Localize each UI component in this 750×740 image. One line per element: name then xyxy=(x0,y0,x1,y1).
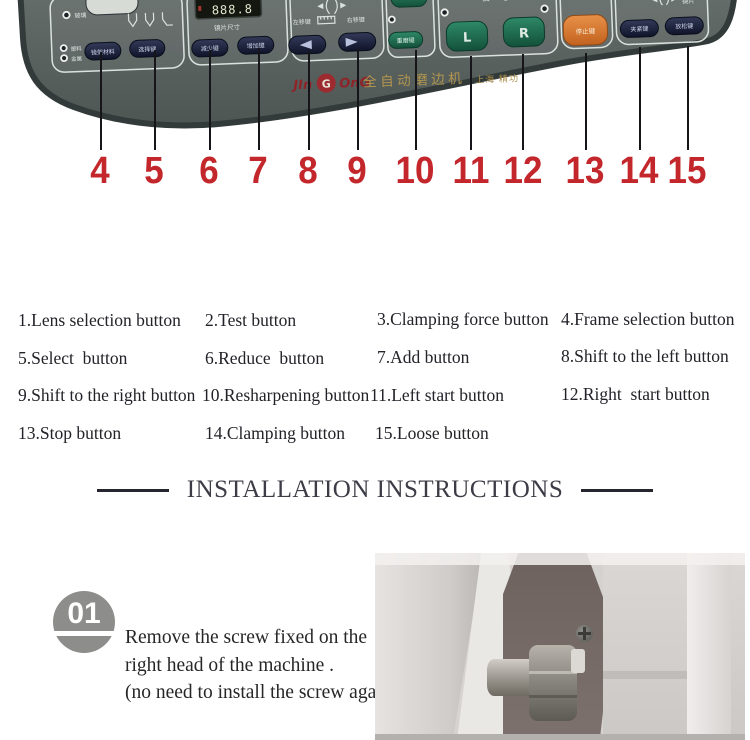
control-panel-photo: 玻璃 塑料 金属 镜架材料 选择键 888.8 镜片尺寸 减少键 xyxy=(0,0,750,160)
callout-number-7: 7 xyxy=(248,152,267,190)
callout-line-5 xyxy=(154,50,156,150)
callout-number-4: 4 xyxy=(90,152,109,190)
regrind-button-label: 重磨键 xyxy=(396,36,414,45)
callout-number-10: 10 xyxy=(396,152,435,190)
start-left-indicator-led xyxy=(441,9,448,16)
start-right-indicator-led xyxy=(541,5,548,12)
frame-material-button-label: 镜架材料 xyxy=(91,48,115,57)
partial-top-button xyxy=(86,0,139,15)
legend-item-15: 15.Loose button xyxy=(375,425,489,443)
legend-item-13: 13.Stop button xyxy=(18,425,121,443)
legend-item-12: 12.Right start button xyxy=(561,386,710,404)
legend-item-3: 3.Clamping force button xyxy=(377,311,549,329)
callout-line-6 xyxy=(209,50,211,150)
display-dot xyxy=(198,6,201,11)
callout-line-15 xyxy=(687,46,689,150)
section-regrind xyxy=(385,0,435,58)
callout-line-14 xyxy=(639,47,641,150)
step-1-text-line-2: right head of the machine . xyxy=(125,656,334,676)
callout-number-13: 13 xyxy=(566,152,605,190)
step-1-badge: 01 xyxy=(53,591,115,653)
bolt-bright-tab xyxy=(571,649,585,673)
callout-line-4 xyxy=(100,52,102,150)
bolt-hex-body xyxy=(529,645,577,721)
callout-number-11: 11 xyxy=(453,152,490,190)
callout-line-13 xyxy=(585,53,587,150)
callout-number-12: 12 xyxy=(504,152,543,190)
callout-line-7 xyxy=(258,48,260,150)
callout-number-8: 8 xyxy=(298,152,317,190)
product-manual-page: 玻璃 塑料 金属 镜架材料 选择键 888.8 镜片尺寸 减少键 xyxy=(0,0,750,740)
start-left-button-label: L xyxy=(463,30,472,45)
legend-item-7: 7.Add button xyxy=(377,349,469,367)
brand-logo-letter: G xyxy=(322,77,332,90)
callout-line-8 xyxy=(308,51,310,150)
machine-right-panel xyxy=(687,553,731,740)
legend-item-10: 10.Resharpening button xyxy=(202,387,369,405)
callout-line-12 xyxy=(522,54,524,150)
legend-item-1: 1.Lens selection button xyxy=(18,312,181,330)
stop-button-label: 停止键 xyxy=(576,26,596,36)
callout-line-11 xyxy=(470,56,472,150)
legend-item-4: 4.Frame selection button xyxy=(561,311,735,329)
header-rule-left xyxy=(97,489,169,492)
shift-right-label: 右移键 xyxy=(347,16,365,25)
step-1-text-line-3: (no need to install the screw again). xyxy=(125,683,403,703)
installation-title: INSTALLATION INSTRUCTIONS xyxy=(187,476,563,504)
legend-item-6: 6.Reduce button xyxy=(205,350,324,368)
glass-label: 玻璃 xyxy=(74,11,86,19)
step-1-text-line-1: Remove the screw fixed on the xyxy=(125,628,367,648)
bolt-facet-line xyxy=(529,671,577,674)
legend-item-2: 2.Test button xyxy=(205,312,296,330)
legend-item-9: 9.Shift to the right button xyxy=(18,387,195,405)
legend-item-14: 14.Clamping button xyxy=(205,425,345,443)
screw-slot-vertical xyxy=(583,627,586,640)
step-1-number: 01 xyxy=(53,597,115,631)
metal-indicator-led xyxy=(61,55,67,61)
regrind-indicator-led xyxy=(389,16,395,22)
callout-number-6: 6 xyxy=(199,152,218,190)
callout-number-9: 9 xyxy=(347,152,366,190)
step-1-photo xyxy=(375,553,745,740)
clamp-button-label: 夹紧键 xyxy=(630,25,648,34)
fixing-screw xyxy=(576,625,593,642)
start-right-button-label: R xyxy=(519,26,530,41)
header-rule-right xyxy=(581,489,653,492)
photo-top-highlight xyxy=(375,553,745,565)
plastic-indicator-led xyxy=(61,45,67,51)
legend-item-11: 11.Left start button xyxy=(370,387,504,405)
lens-size-display-value: 888.8 xyxy=(212,2,254,18)
bolt-facet-line-lower xyxy=(529,695,577,698)
callout-number-14: 14 xyxy=(620,152,659,190)
legend-item-5: 5.Select button xyxy=(18,350,127,368)
photo-bottom-shadow xyxy=(375,734,745,740)
loosen-button-label: 放松键 xyxy=(675,22,693,31)
glass-indicator-led xyxy=(63,12,70,19)
callout-number-5: 5 xyxy=(144,152,163,190)
callout-line-9 xyxy=(357,49,359,150)
shift-left-label: 左移键 xyxy=(293,18,311,27)
callout-number-15: 15 xyxy=(668,152,707,190)
callout-line-10 xyxy=(415,50,417,150)
lens-label: 镜片 xyxy=(682,0,695,5)
installation-header: INSTALLATION INSTRUCTIONS xyxy=(0,476,750,504)
lens-size-label: 镜片尺寸 xyxy=(214,22,241,32)
add-button-label: 增加键 xyxy=(247,41,265,50)
legend-item-8: 8.Shift to the left button xyxy=(561,348,729,366)
step-badge-divider xyxy=(50,631,118,636)
